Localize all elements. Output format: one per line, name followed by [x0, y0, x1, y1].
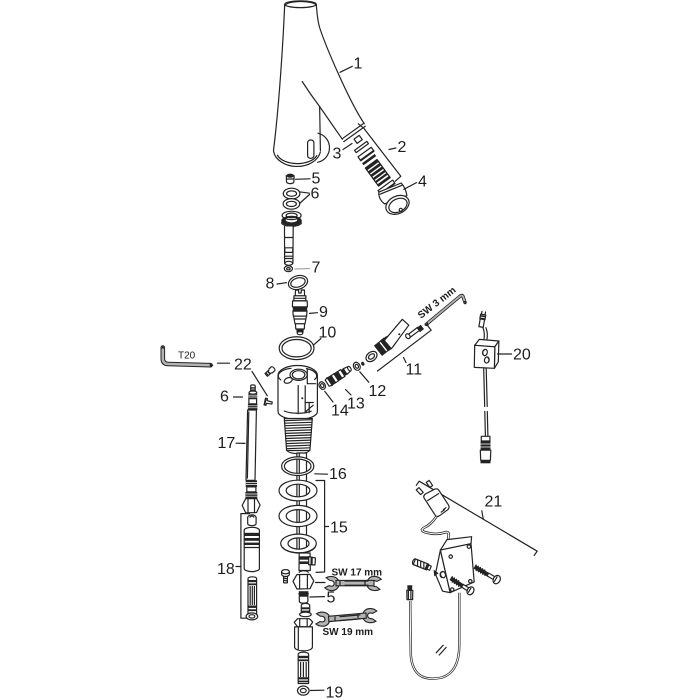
svg-text:SW 19 mm: SW 19 mm: [323, 627, 374, 638]
svg-text:11: 11: [406, 362, 423, 379]
svg-text:4: 4: [418, 174, 427, 191]
svg-text:20: 20: [513, 347, 531, 364]
svg-text:3: 3: [333, 146, 342, 163]
svg-text:21: 21: [485, 494, 503, 511]
svg-text:9: 9: [319, 304, 328, 321]
svg-text:5: 5: [327, 590, 336, 607]
svg-text:2: 2: [398, 139, 407, 156]
svg-text:6: 6: [220, 389, 229, 406]
svg-text:8: 8: [266, 276, 275, 293]
svg-text:22: 22: [234, 357, 252, 374]
svg-text:1: 1: [354, 56, 363, 73]
svg-text:T20: T20: [178, 351, 196, 362]
svg-text:18: 18: [217, 561, 235, 578]
svg-text:15: 15: [330, 520, 348, 537]
svg-text:6: 6: [311, 186, 320, 203]
svg-text:7: 7: [312, 260, 321, 277]
svg-text:13: 13: [347, 396, 365, 413]
svg-text:10: 10: [319, 325, 337, 342]
svg-text:17: 17: [218, 435, 236, 452]
svg-text:12: 12: [369, 383, 387, 400]
svg-text:SW 17 mm: SW 17 mm: [332, 568, 383, 579]
svg-text:19: 19: [326, 685, 344, 700]
svg-text:16: 16: [329, 466, 347, 483]
